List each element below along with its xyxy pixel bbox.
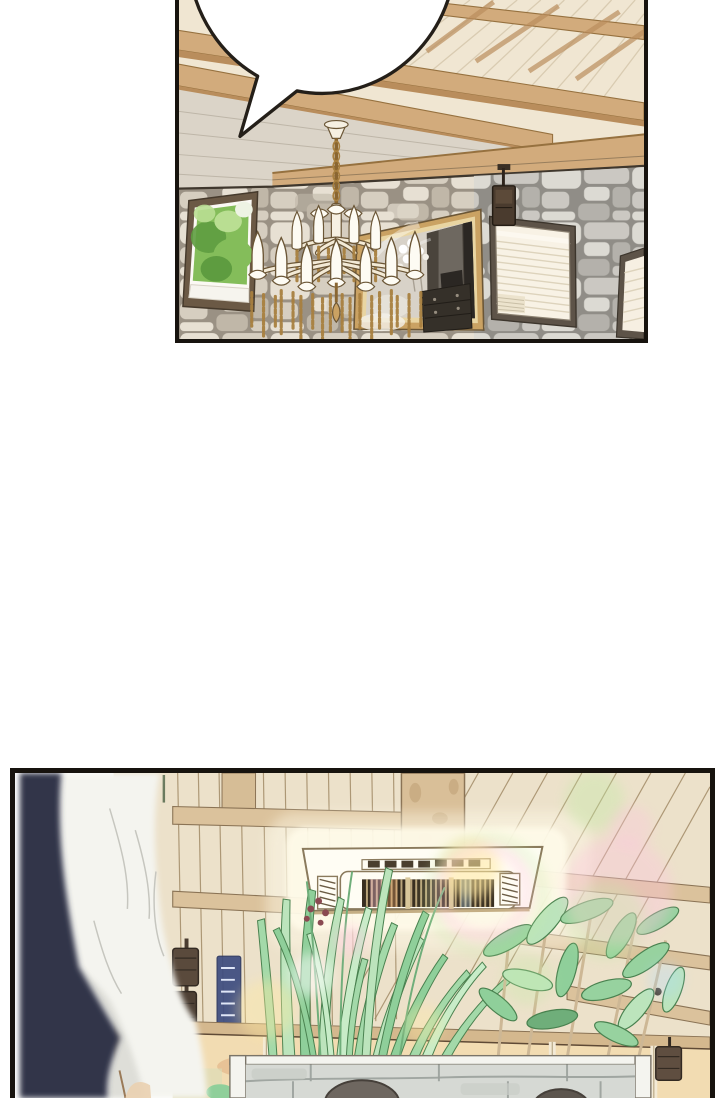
garden-window: [183, 192, 258, 312]
comic-panel-greenhouse-cafe: [10, 768, 715, 1098]
stone-planter: [206, 1056, 651, 1098]
comic-panel-stone-lounge: [175, 0, 648, 343]
comic-page: [0, 0, 720, 1098]
blind-window: [490, 216, 577, 327]
far-right-window: [616, 248, 644, 339]
panel-1-art: [179, 0, 644, 339]
panel-2-art: [15, 773, 710, 1098]
